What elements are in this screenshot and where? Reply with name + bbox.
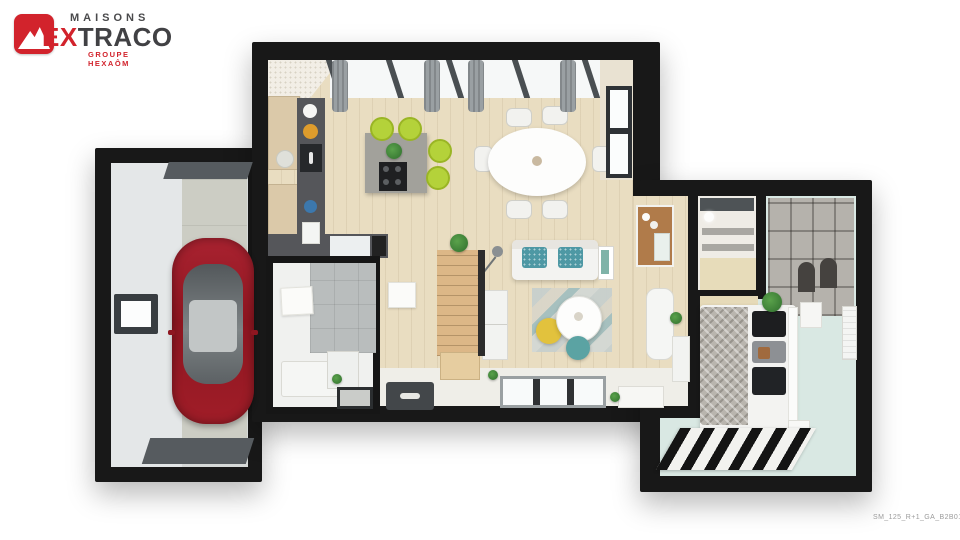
kitchen-counter-bottom [268,234,388,258]
brand-rest: TRACO [78,22,173,52]
window-mullion [512,60,530,98]
bed-headboard [788,307,798,431]
leaning-artwork [598,246,614,280]
laundry-box [327,351,359,389]
sofa-cushion [558,247,583,268]
dining-window-pane [610,90,628,128]
stair-railing [478,250,485,356]
bedroom-radiator [842,306,857,360]
kitchen-appliance [330,236,370,256]
bar-stool [398,117,422,141]
garage-door-top [163,162,253,179]
dining-chair [506,200,532,219]
bar-stool [370,117,394,141]
utility-room [266,256,380,414]
kitchen-island [365,133,427,193]
utility-mat [337,387,373,409]
island-hob [379,162,407,191]
window-frame-bar [567,379,574,405]
closet-shelf [702,228,754,235]
dining-window-pane [610,134,628,174]
brand-logo: MAISONS EXTRACO GROUPE HEXAÔM [12,8,172,60]
floor-lamp [492,246,503,257]
floorplan-render-page: MAISONS EXTRACO GROUPE HEXAÔM [0,0,960,540]
table-decor [574,312,583,321]
garage-window [114,294,158,334]
closet-ceiling-panel [700,198,754,211]
dining-window [606,86,632,178]
closet-shelf [702,244,754,251]
artwork-print [601,250,609,274]
stair-plant [450,234,468,252]
garage-door-bottom [142,438,254,464]
bed-throw-blanket [700,307,748,425]
garage-window-pane [121,301,151,327]
brand-name-main: EXTRACO [42,22,173,53]
decor-sphere [642,213,650,221]
closet-floor [700,258,756,290]
dressing-basket [798,262,815,292]
striped-rug [656,428,816,470]
living-white-cabinet [482,290,508,360]
small-plant [610,392,620,402]
island-plant [386,143,402,159]
hob-burner [383,179,389,185]
utility-wall-panel [280,286,313,316]
closet-dressing-divider-wall [756,190,766,296]
white-mat [618,386,664,408]
bar-stool [428,139,452,163]
dressing-basket [820,258,837,288]
staircase [437,250,479,356]
stair-storage [440,352,480,380]
hob-burner [383,166,389,172]
leaning-art-small [654,233,670,261]
entry-doormat [386,382,434,410]
doormat-slot [400,393,420,399]
kitchen-sink [300,144,322,172]
curtain [560,60,576,112]
curtain [468,60,484,112]
faucet [309,152,313,164]
laundry-plant [332,374,342,384]
pillow-black [752,367,786,395]
small-plant [488,370,498,380]
shelf-plant [670,312,682,324]
bedside-shelf [800,302,822,328]
brand-tagline: GROUPE HEXAÔM [88,50,172,68]
window-mullion [386,60,404,98]
sliding-bay-window [500,376,606,408]
water-heater [646,288,674,360]
kitchen-cooktop-edge [372,236,386,256]
red-car [172,238,254,424]
kettle [303,104,317,118]
decor-sphere [650,221,658,229]
plan-reference-code: SM_125_R+1_GA_B2B01 [873,514,960,521]
wood-wall-cabinet [636,205,674,267]
car-mirror-right [251,330,258,335]
bedroom-plant [762,292,782,312]
window-mullion [582,60,600,98]
table-centerpiece [532,156,542,166]
sofa-cushion [522,247,547,268]
coffee-machine [302,222,320,244]
sofa [512,240,598,280]
window-mullion [446,60,464,98]
pillow-black [752,311,786,337]
bed [700,305,796,431]
utility-tiled-wall [310,263,376,353]
teal-pouf [566,336,590,360]
wall-shelf-unit [672,336,690,382]
hall-wall-panel [388,282,416,308]
curtain [332,60,348,112]
cabinet-divider [483,324,507,325]
pillow-accent [758,347,770,359]
hob-burner [395,166,401,172]
floor-plate-decor [276,150,294,168]
bar-stool [426,166,450,190]
fruit-bowl [303,124,318,139]
hob-burner [395,179,401,185]
dining-chair [506,108,532,127]
dining-chair [542,200,568,219]
curtain [424,60,440,112]
dining-table [488,128,586,196]
closet-room [698,196,758,292]
blue-pot [304,200,317,213]
ball-lamp [704,212,714,222]
brand-accent: EX [42,22,78,52]
car-mirror-left [168,330,175,335]
car-roof [189,300,237,352]
window-frame-bar [533,379,540,405]
